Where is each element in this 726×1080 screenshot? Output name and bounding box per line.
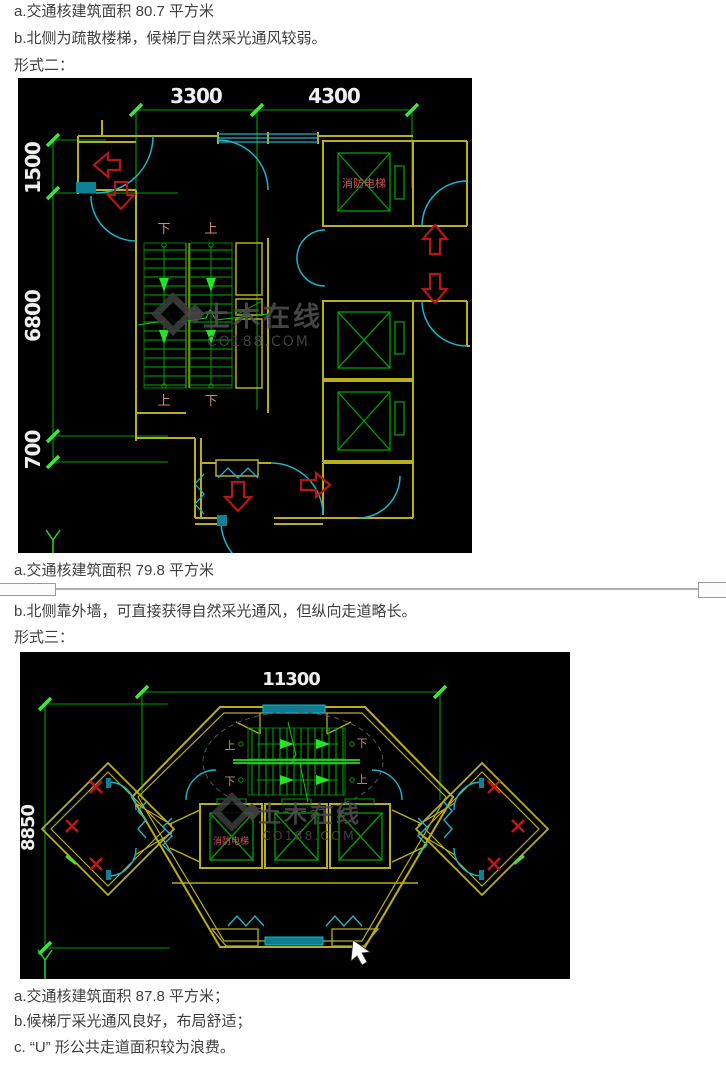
- floorplan-form2-image[interactable]: 3300 4300 1500 6800 700: [18, 78, 472, 553]
- page-break-handle-left[interactable]: [0, 583, 56, 596]
- stair-label-down: 下: [357, 737, 368, 750]
- page-break-line: [0, 588, 726, 590]
- watermark-title: 土木在线: [203, 302, 323, 333]
- fire-elevator-label: 消防电梯: [342, 176, 386, 190]
- form1-note-text: b.北侧为疏散楼梯，候梯厅自然采光通风较弱。: [14, 30, 327, 48]
- fire-elevator-label: 消防电梯: [213, 835, 249, 847]
- stair-label-up: 上: [204, 222, 217, 237]
- floorplan-form3-image[interactable]: 11300 8850: [20, 652, 570, 979]
- dim-700: 700: [21, 431, 45, 470]
- form2-note-text: b.北侧靠外墙，可直接获得自然采光通风，但纵向走道略长。: [14, 603, 417, 621]
- form3-note2-text: c. “U” 形公共走道面积较为浪费。: [14, 1039, 235, 1057]
- stair-label-up: 上: [225, 739, 236, 752]
- watermark-site: CO188.COM: [207, 334, 310, 350]
- page-break-handle-right[interactable]: [698, 582, 726, 598]
- form3-note-text: b.候梯厅采光通风良好，布局舒适；: [14, 1013, 252, 1031]
- stair-label-down2: 下: [204, 394, 217, 409]
- dim-11300: 11300: [262, 669, 320, 690]
- stair-label-up2: 上: [157, 394, 170, 409]
- page-break-divider: [0, 582, 726, 600]
- form2-heading: 形式二：: [14, 57, 74, 75]
- stair-label-down2: 下: [225, 775, 236, 788]
- form3-heading: 形式三：: [14, 629, 74, 647]
- form3-area-text: a.交通核建筑面积 87.8 平方米；: [14, 988, 229, 1006]
- form1-area-text: a.交通核建筑面积 80.7 平方米: [14, 3, 214, 21]
- form2-area-text: a.交通核建筑面积 79.8 平方米: [14, 562, 214, 580]
- dim-1500: 1500: [21, 142, 45, 194]
- watermark-title: 土木在线: [258, 801, 362, 828]
- watermark-site: CO188.COM: [262, 828, 356, 843]
- dim-6800: 6800: [21, 290, 45, 342]
- dim-4300: 4300: [308, 84, 360, 108]
- stair-label-down: 下: [157, 222, 170, 237]
- document-page: a.交通核建筑面积 80.7 平方米 b.北侧为疏散楼梯，候梯厅自然采光通风较弱…: [0, 0, 726, 1080]
- dim-8850: 8850: [20, 804, 39, 851]
- dim-3300: 3300: [170, 84, 222, 108]
- stair-label-up2: 上: [357, 773, 368, 786]
